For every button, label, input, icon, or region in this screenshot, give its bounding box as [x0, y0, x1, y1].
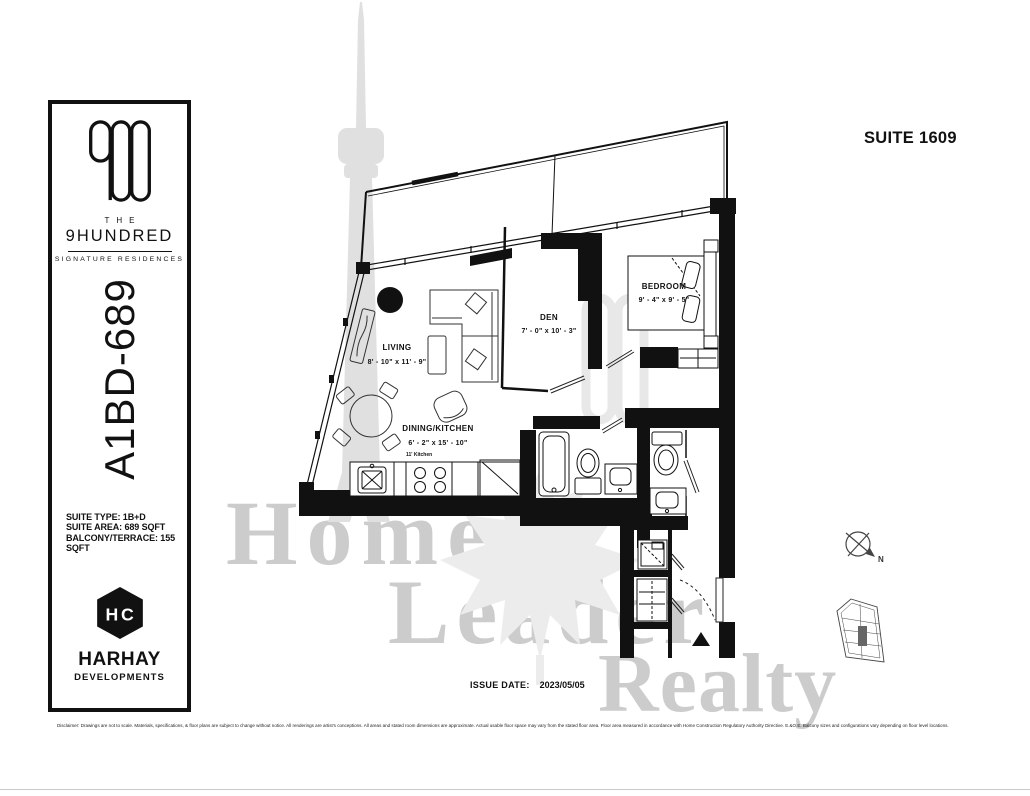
- chair: [379, 382, 398, 400]
- suite-title: SUITE 1609: [864, 129, 957, 148]
- brand-name: 9HUNDRED: [52, 227, 187, 246]
- living-label: LIVING: [382, 343, 411, 352]
- developer-name: HARHAY: [52, 649, 187, 671]
- vanity-sink: [605, 464, 637, 494]
- developer-subtitle: DEVELOPMENTS: [52, 672, 187, 683]
- developer-block: H C HARHAY DEVELOPMENTS: [52, 586, 187, 683]
- chair: [382, 433, 401, 451]
- toilet: [652, 432, 682, 475]
- bedroom-dims: 9' - 4" x 9' - 5": [639, 297, 690, 304]
- closet-sliding-doors: [678, 349, 718, 368]
- second-bathroom: [650, 432, 686, 514]
- dining-kitchen-dims: 6' - 2" x 15' - 10": [408, 440, 467, 447]
- bedroom-label: BEDROOM: [642, 282, 687, 291]
- svg-text:H: H: [105, 604, 118, 624]
- plan-code-wrap: A1BD-689: [52, 267, 187, 491]
- nightstand: [704, 336, 718, 348]
- brand-tagline: SIGNATURE RESIDENCES: [52, 256, 187, 263]
- issue-date-label: ISSUE DATE:: [470, 680, 530, 690]
- svg-text:C: C: [121, 604, 134, 624]
- nightstand: [704, 240, 718, 252]
- spec-suite-type: SUITE TYPE: 1B+D: [66, 512, 187, 522]
- suite-specs: SUITE TYPE: 1B+D SUITE AREA: 689 SQFT BA…: [66, 512, 187, 553]
- kitchen-counter: [350, 460, 520, 496]
- vanity-sink: [650, 488, 686, 514]
- kitchen-note: 11' Kitchen: [406, 452, 432, 458]
- spec-suite-area: SUITE AREA: 689 SQFT: [66, 522, 187, 532]
- hc-cube-icon: H C: [95, 586, 145, 640]
- den-dims: 7' - 0" x 10' - 3": [521, 328, 576, 335]
- toilet: [575, 449, 601, 494]
- den-label: DEN: [540, 313, 558, 322]
- plan-code: A1BD-689: [96, 278, 144, 480]
- spec-balcony: BALCONY/TERRACE: 155 SQFT: [66, 533, 187, 554]
- key-plan: [837, 599, 884, 662]
- main-bathroom: [539, 432, 637, 496]
- living-dims: 8' - 10" x 11' - 9": [368, 359, 427, 366]
- sidebar-panel: THE 9HUNDRED SIGNATURE RESIDENCES A1BD-6…: [48, 100, 191, 712]
- headboard: [704, 252, 716, 336]
- 900-logo-icon: [87, 119, 153, 203]
- issue-date: ISSUE DATE:2023/05/05: [470, 680, 585, 690]
- pillow: [465, 293, 486, 314]
- brand-block: THE 9HUNDRED SIGNATURE RESIDENCES: [52, 104, 187, 263]
- brand-divider: [68, 251, 172, 252]
- column: [377, 287, 403, 313]
- disclaimer-text: Disclaimer: Drawings are not to scale. M…: [57, 723, 1024, 728]
- laundry-closet: [637, 540, 667, 621]
- bathtub: [539, 432, 569, 496]
- closet: [637, 579, 667, 621]
- coffee-table: [428, 336, 446, 374]
- brand-the: THE: [59, 216, 187, 225]
- issue-date-value: 2023/05/05: [540, 680, 585, 690]
- pillow: [465, 349, 486, 370]
- dining-kitchen-label: DINING/KITCHEN: [402, 424, 473, 433]
- compass-icon: N: [846, 532, 884, 564]
- entry-arrow-icon: [692, 632, 710, 646]
- armchair: [431, 389, 469, 425]
- north-label: N: [878, 555, 884, 564]
